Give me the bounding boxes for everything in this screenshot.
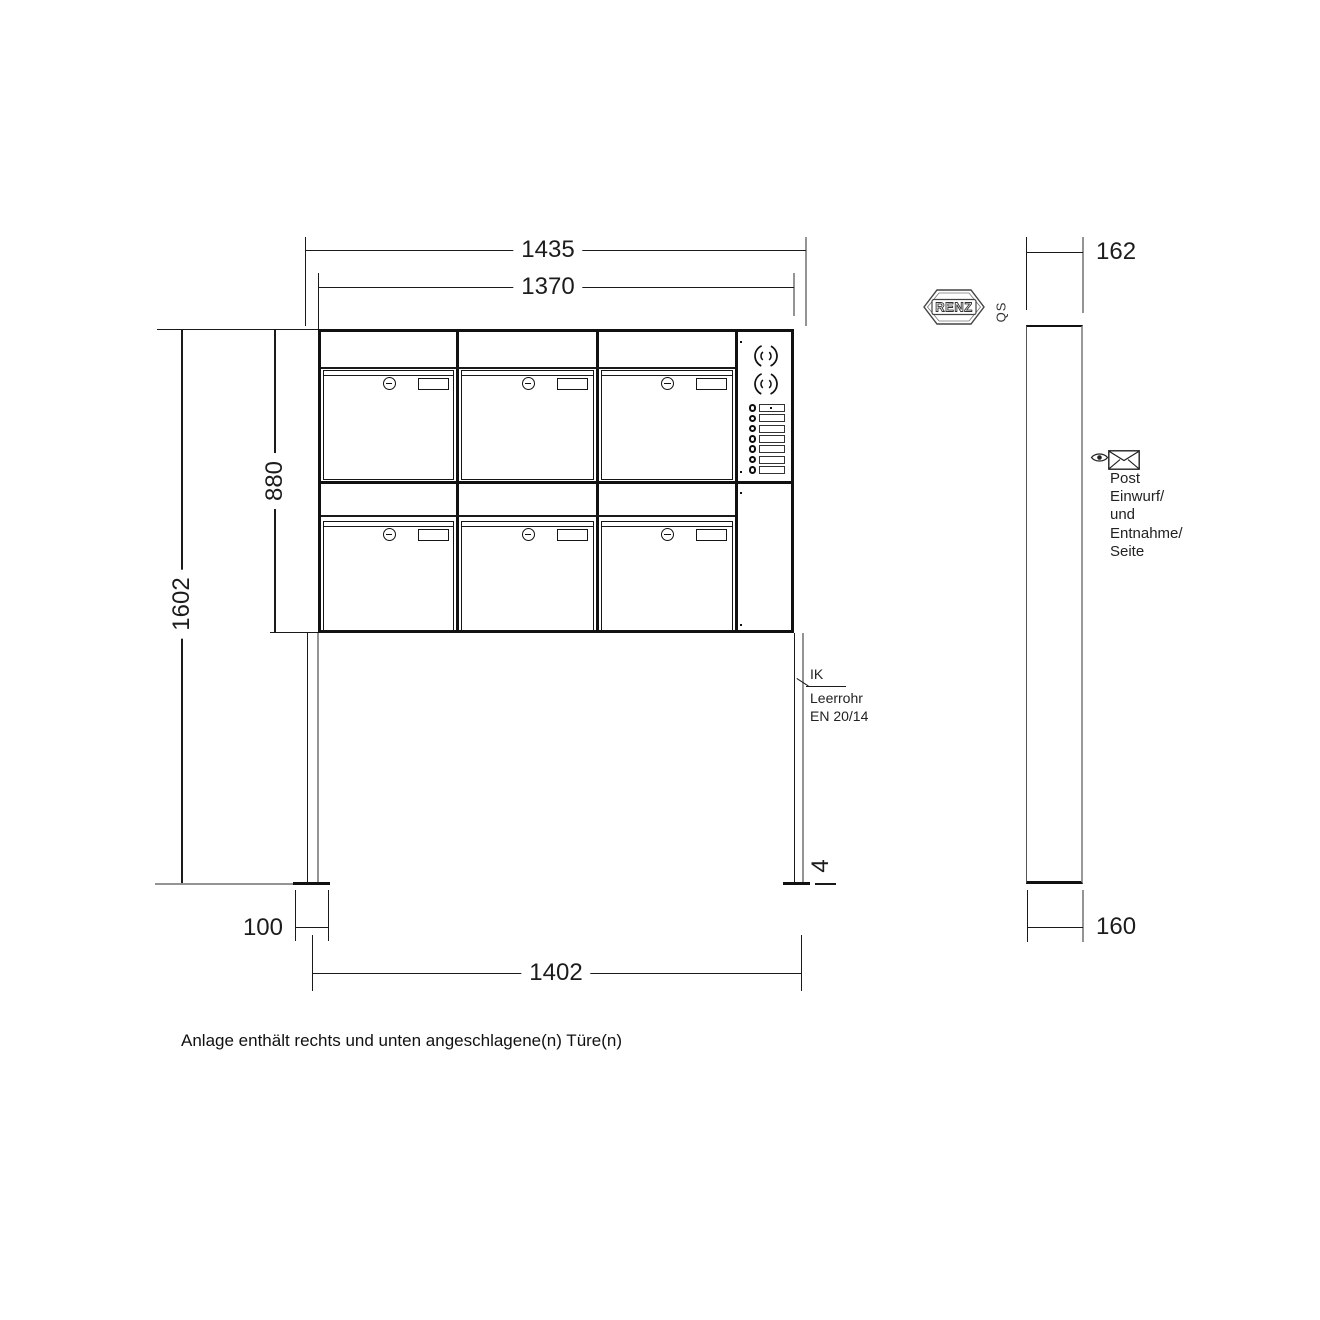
renz-logo: RENZ <box>922 286 986 328</box>
cabinet-divider <box>321 515 735 517</box>
lock-cylinder-icon <box>383 377 396 390</box>
extension-line <box>328 890 329 941</box>
renz-logo-text: RENZ <box>935 300 972 315</box>
hinge-mark <box>740 341 742 343</box>
dim-box-row-width-label: 1370 <box>513 273 582 301</box>
lock-slot <box>386 534 392 536</box>
ground-line-dash <box>815 883 836 885</box>
mailbox-door <box>323 521 454 631</box>
extension-line <box>1026 237 1027 310</box>
left-post <box>307 633 308 883</box>
note-rule <box>806 686 846 687</box>
extension-line <box>793 273 795 316</box>
view-direction-eye-icon <box>1091 452 1108 463</box>
drawing-caption: Anlage enthält rechts und unten angeschl… <box>181 1031 622 1051</box>
extension-line <box>1082 890 1084 942</box>
dim-post-spacing-label: 1402 <box>521 959 590 987</box>
dim-base-plate-label: 4 <box>807 855 835 876</box>
extension-line <box>801 935 802 991</box>
lock-cylinder-icon <box>383 528 396 541</box>
name-plate <box>557 529 588 541</box>
cabinet-side-view <box>1026 325 1083 884</box>
qs-label: QS <box>994 302 1009 323</box>
bell-name-plate <box>759 435 785 443</box>
extension-line <box>312 935 313 991</box>
name-plate <box>418 529 449 541</box>
access-note-line: und <box>1110 506 1135 523</box>
right-foot-plate <box>783 882 810 885</box>
bell-button-icon <box>749 404 757 412</box>
mailbox-door <box>601 521 733 631</box>
name-plate <box>557 378 588 390</box>
conduit-note-line1: IK <box>810 666 823 682</box>
lock-cylinder-icon <box>661 377 674 390</box>
hinge-mark <box>740 492 742 494</box>
dim-depth-top-label: 162 <box>1090 238 1136 266</box>
bell-name-plate <box>759 425 785 433</box>
bell-name-plate <box>759 456 785 464</box>
lock-slot <box>525 534 531 536</box>
extension-line <box>1082 237 1084 313</box>
lock-cylinder-icon <box>522 528 535 541</box>
bell-button-icon <box>749 435 757 443</box>
mail-envelope-icon <box>1108 450 1140 470</box>
intercom-speaker-icon <box>752 370 780 398</box>
intercom-speaker-icon <box>752 342 780 370</box>
cabinet-divider <box>321 367 735 369</box>
conduit-note-line2: Leerrohr <box>810 690 863 706</box>
bell-name-plate <box>759 414 785 422</box>
technical-drawing-sheet: 1435 1370 1602 880 100 <box>0 0 1320 1320</box>
bell-button-icon <box>749 466 757 474</box>
mailbox-door <box>461 521 594 631</box>
right-post <box>794 633 795 883</box>
extension-line <box>318 273 319 330</box>
dim-overall-width-label: 1435 <box>513 236 582 264</box>
bell-name-plate <box>759 466 785 474</box>
conduit-leerrohr <box>802 633 804 883</box>
extension-line <box>1027 890 1028 942</box>
dim-post-width-label: 100 <box>235 914 291 942</box>
ground-line <box>155 883 293 885</box>
bell-name-plate <box>759 445 785 453</box>
left-post-edge <box>317 633 319 883</box>
dim-total-height-label: 1602 <box>168 569 196 638</box>
left-foot-plate <box>293 882 330 885</box>
dim-depth-bottom-label: 160 <box>1090 913 1136 941</box>
lock-cylinder-icon <box>661 528 674 541</box>
access-note-line: Post <box>1110 470 1140 487</box>
dimension-line-post-width <box>296 927 330 928</box>
name-plate <box>696 378 727 390</box>
mailbox-door <box>601 370 733 480</box>
hinge-mark <box>740 624 742 626</box>
dimension-line-depth-top <box>1027 252 1083 253</box>
mailbox-door <box>461 370 594 480</box>
dim-box-block-height-label: 880 <box>261 453 289 509</box>
access-note-line: Seite <box>1110 543 1144 560</box>
lock-slot <box>664 383 670 385</box>
bell-plate-mark <box>770 407 772 409</box>
lock-slot <box>664 534 670 536</box>
lock-cylinder-icon <box>522 377 535 390</box>
lock-slot <box>525 383 531 385</box>
extension-line <box>270 632 318 633</box>
access-note-line: Einwurf/ <box>1110 488 1164 505</box>
conduit-note-line3: EN 20/14 <box>810 708 868 724</box>
cabinet-divider <box>321 481 791 484</box>
name-plate <box>696 529 727 541</box>
mailbox-door <box>323 370 454 480</box>
lock-slot <box>386 383 392 385</box>
dimension-line-depth-bottom <box>1027 927 1083 928</box>
access-note-line: Entnahme/ <box>1110 525 1183 542</box>
name-plate <box>418 378 449 390</box>
extension-line <box>295 890 296 941</box>
hinge-mark <box>740 471 742 473</box>
